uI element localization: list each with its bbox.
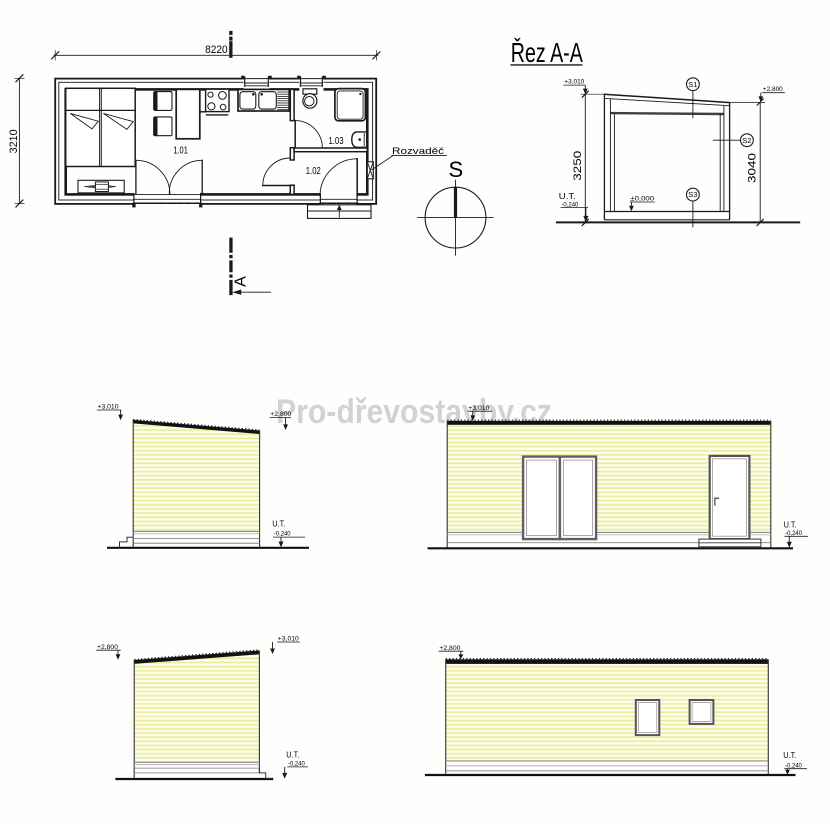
svg-text:1.01: 1.01 [173,145,188,157]
svg-text:-0,240: -0,240 [288,761,305,768]
svg-text:+2,800: +2,800 [763,86,783,93]
svg-text:S2: S2 [742,136,751,145]
svg-text:+3,010: +3,010 [564,79,584,86]
svg-text:3040: 3040 [746,153,758,183]
svg-text:S3: S3 [688,190,697,199]
svg-text:A: A [233,276,250,287]
svg-text:1.03: 1.03 [329,135,344,147]
svg-text:-0,240: -0,240 [274,531,291,538]
svg-text:Řez A-A: Řez A-A [511,37,583,68]
svg-text:+2,800: +2,800 [97,644,118,651]
svg-text:-0,240: -0,240 [785,530,802,537]
svg-text:U.T.: U.T. [559,191,576,201]
svg-text:U.T.: U.T. [784,520,797,530]
svg-text:U.T.: U.T. [286,750,299,760]
svg-text:±0,000: ±0,000 [630,195,654,202]
svg-text:3210: 3210 [8,129,20,153]
svg-text:Rozvaděč: Rozvaděč [392,146,444,156]
svg-text:+3,010: +3,010 [98,404,119,411]
svg-text:8220: 8220 [205,44,228,56]
svg-text:S: S [448,157,463,182]
svg-text:1.02: 1.02 [306,165,321,177]
svg-text:U.T.: U.T. [783,750,796,760]
svg-text:+3,010: +3,010 [468,405,489,412]
svg-text:+3,010: +3,010 [278,636,299,643]
svg-text:-0,240: -0,240 [785,762,802,769]
svg-text:S1: S1 [688,80,697,89]
svg-text:+2,800: +2,800 [270,411,291,418]
svg-text:+2,800: +2,800 [439,645,460,652]
svg-text:U.T.: U.T. [272,519,285,529]
svg-text:3250: 3250 [572,151,584,181]
